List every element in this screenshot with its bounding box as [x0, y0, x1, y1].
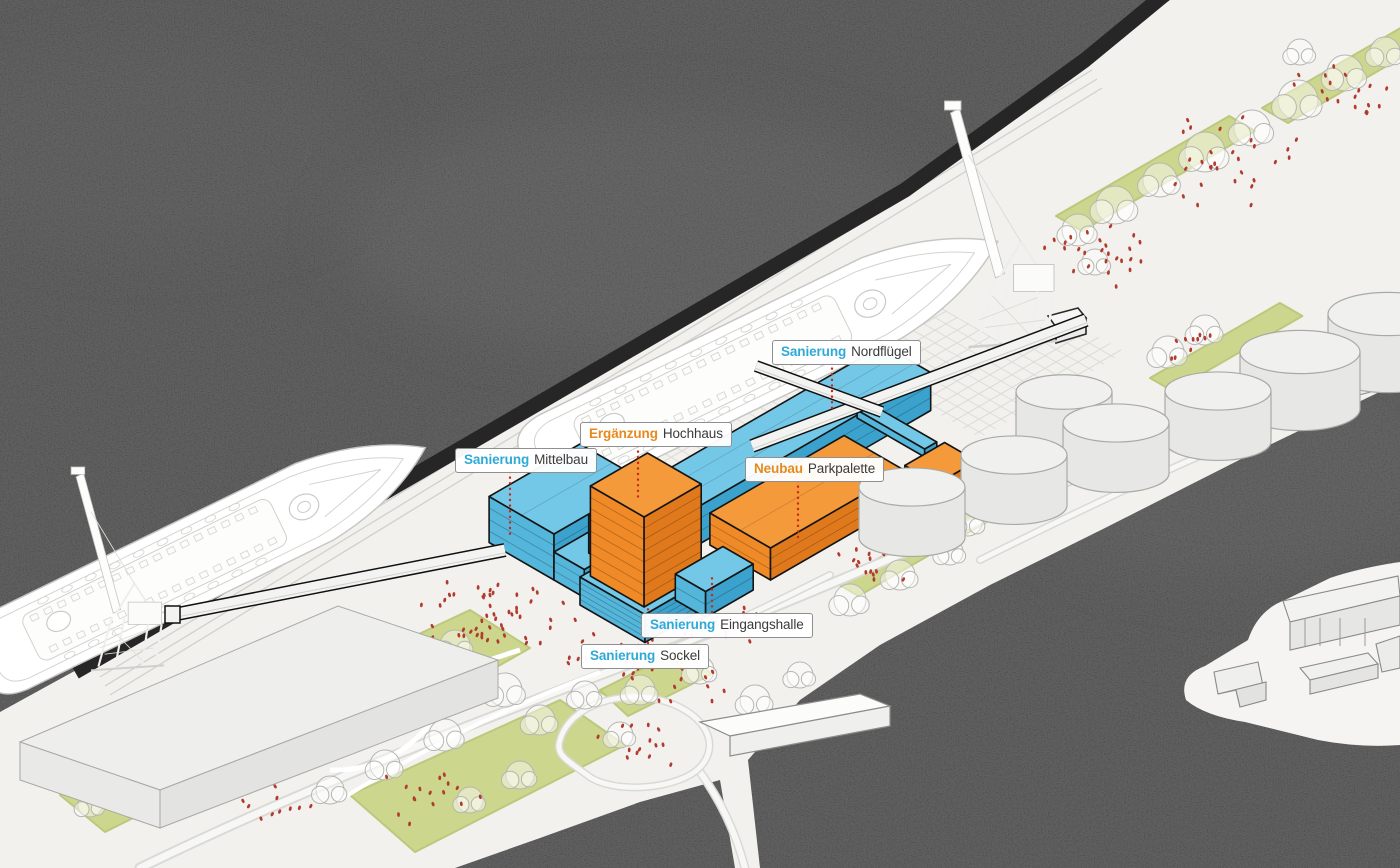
- person-dot: [477, 585, 480, 590]
- storage-tank: [1063, 404, 1169, 493]
- crane-machinery-house: [128, 602, 161, 624]
- storage-tank: [1165, 372, 1271, 461]
- site-diagram: SanierungNordflügelErgänzungHochhausSani…: [0, 0, 1400, 868]
- crane-boom-head: [945, 101, 962, 110]
- crane-boom-head: [71, 467, 85, 474]
- gangway-foot: [165, 606, 180, 623]
- storage-tank: [859, 468, 965, 557]
- person-dot: [728, 618, 731, 623]
- scene-canvas: [0, 0, 1400, 868]
- storage-tank: [961, 436, 1067, 525]
- crane-machinery-house: [1014, 265, 1055, 292]
